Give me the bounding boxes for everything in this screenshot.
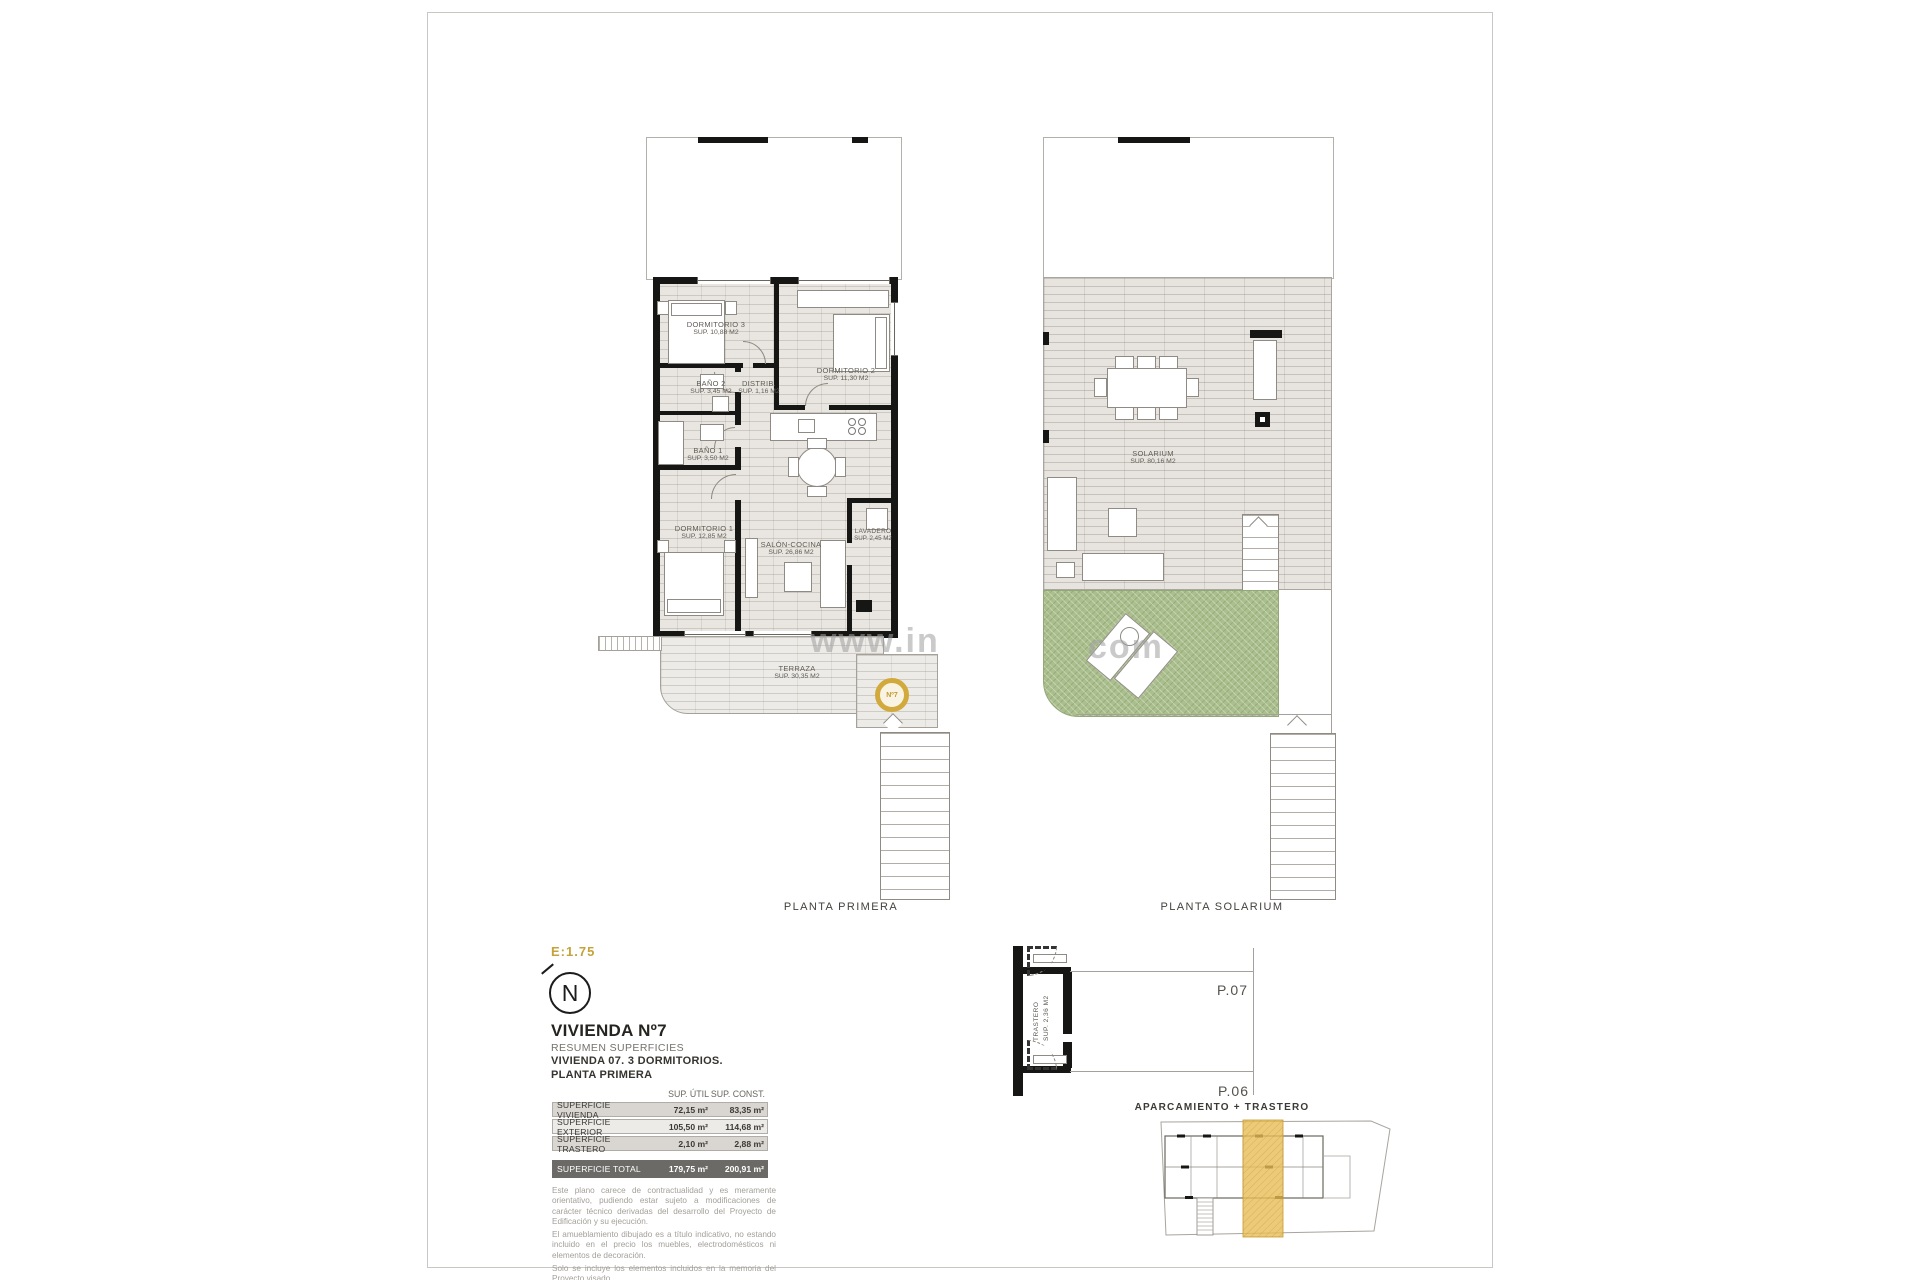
room-label-bano-2: BAÑO 2 SUP. 3,45 M2 [690,379,731,395]
wall-segment [852,137,868,143]
parking-line [1070,1071,1253,1072]
room-label-lavadero: LAVADERO SUP. 2,45 M2 [854,528,892,542]
dining-table [797,447,837,487]
scale-label: E:1.75 [551,944,595,959]
window [798,277,890,284]
pouf [1056,562,1075,578]
pillow [875,317,887,369]
room-area: SUP. 26,86 M2 [761,549,822,556]
table-row: SUPERFICIE TRASTERO 2,10 m² 2,88 m² [552,1136,768,1151]
site-key-plan [1145,1116,1400,1266]
wall-segment [735,392,741,425]
nightstand [657,540,669,553]
room-area: SUP. 11,30 M2 [817,375,875,382]
disclaimer-paragraph: Este plano carece de contractualidad y e… [552,1186,776,1227]
surface-table-header: SUP. ÚTIL SUP. CONST. [552,1088,768,1100]
disclaimer-paragraph: El amueblamiento dibujado es a título in… [552,1230,776,1261]
chair [807,486,827,497]
north-letter: N [562,980,579,1007]
kitchen-sink [798,419,815,433]
room-area: SUP. 30,35 M2 [774,673,819,680]
window [891,302,898,356]
room-area: SUP. 2,45 M2 [854,535,892,542]
row-const: 83,35 m² [708,1105,767,1115]
tv-unit [745,538,758,598]
wall-segment [829,405,897,410]
sofa [820,540,846,608]
chair [835,457,846,477]
exterior-staircase [1270,733,1336,900]
chair [1137,407,1156,420]
room-name: DORMITORIO 1 [675,524,733,533]
wall-segment [1043,332,1049,345]
chair [1115,407,1134,420]
room-area: SUP. 3,50 M2 [687,455,728,462]
room-name: DORMITORIO 3 [687,320,745,329]
sink-bano-1 [700,424,724,441]
hob-burner [858,427,866,435]
table-total-row: SUPERFICIE TOTAL 179,75 m² 200,91 m² [552,1160,768,1178]
nightstand [724,540,736,553]
room-label-salon-cocina: SALÓN-COCINA SUP. 26,86 M2 [761,540,822,556]
wall-segment [847,503,852,543]
hob-burner [848,427,856,435]
solarium-dining-table [1107,368,1187,408]
chair [788,457,799,477]
parking-line [1070,971,1253,972]
room-label-distribuidor: DISTRIB. SUP. 1,16 M2 [738,379,779,395]
wall-segment [735,363,741,372]
window [697,277,771,284]
page-title: VIVIENDA Nº7 [551,1021,667,1041]
hob-burner [848,418,856,426]
room-label-dormitorio-3: DORMITORIO 3 SUP. 10,88 M2 [687,320,745,336]
roof-outline-solarium [1043,137,1334,279]
parking-spot-06: P.06 [1218,1083,1249,1099]
plot-line [1077,714,1332,715]
room-name: BAÑO 1 [687,446,728,455]
wall-segment [1043,430,1049,443]
outdoor-table [1108,508,1137,537]
room-name: SALÓN-COCINA [761,540,822,549]
row-const: 114,68 m² [708,1122,767,1132]
toilet-bano-2 [712,396,729,412]
chair [1137,356,1156,369]
disclaimer-paragraph: Solo se incluye los elementos incluidos … [552,1264,776,1280]
wall-segment [856,600,872,612]
row-const: 2,88 m² [708,1139,767,1149]
plan-caption-solarium: PLANTA SOLARIUM [1161,901,1284,913]
trastero-detail-label: TRASTERO SUP. 2,36 M2 [1032,983,1058,1041]
room-area: SUP. 1,16 M2 [738,388,779,395]
chair [1094,378,1107,397]
room-label-terraza: TERRAZA SUP. 30,35 M2 [774,664,819,680]
total-const: 200,91 m² [708,1164,767,1174]
ac-unit-core [1260,417,1265,422]
room-area: SUP. 3,45 M2 [690,388,731,395]
table-row: SUPERFICIE VIVIENDA 72,15 m² 83,35 m² [552,1102,768,1117]
row-util: 72,15 m² [646,1105,708,1115]
parking-line [1253,948,1254,1095]
chair [1115,356,1134,369]
parking-spot-07: P.07 [1217,982,1248,998]
watermark-left: www.in [810,622,940,661]
room-area: SUP. 12,85 M2 [675,533,733,540]
pillow [667,599,721,613]
wall-segment [1118,137,1190,143]
watermark-right: com [1088,628,1164,667]
room-area: SUP. 10,88 M2 [687,329,745,336]
row-label: SUPERFICIE TRASTERO [553,1134,646,1154]
washer-lavadero [866,508,888,530]
wardrobe-dormitorio-2 [797,290,889,308]
outdoor-sofa [1047,477,1077,551]
total-util: 179,75 m² [646,1164,708,1174]
wall-segment [847,498,898,503]
plot-line [1331,590,1332,735]
col-header-const: SUP. CONST. [709,1089,768,1099]
table-row: SUPERFICIE EXTERIOR 105,50 m² 114,68 m² [552,1119,768,1134]
wall-segment [653,465,741,470]
coffee-table [784,562,812,592]
room-name: BAÑO 2 [690,379,731,388]
unit-description: VIVIENDA 07. 3 DORMITORIOS. [551,1055,723,1067]
plan-sheet-page: Nº7 DORMITORIO 3 SUP. 10,88 M2 DORMITORI… [0,0,1920,1280]
shower-bano-1 [658,421,684,465]
roof-outline-primera [646,137,902,280]
wall-segment [1013,946,1023,1096]
room-name: LAVADERO [854,528,892,535]
room-area: SUP. 80,16 M2 [1130,458,1175,465]
nightstand [725,301,737,315]
terrace-railing [598,636,662,651]
wall-segment [698,137,768,143]
col-header-util: SUP. ÚTIL [647,1089,709,1099]
unit-number-badge: Nº7 [875,678,909,712]
north-arrow: N [549,972,591,1014]
room-label-dormitorio-1: DORMITORIO 1 SUP. 12,85 M2 [675,524,733,540]
wall-segment [735,500,741,631]
plan-caption-primera: PLANTA PRIMERA [784,901,898,913]
wall-segment [1250,330,1282,338]
page-subtitle: RESUMEN SUPERFICIES [551,1042,684,1054]
floor-description: PLANTA PRIMERA [551,1069,652,1081]
nightstand [657,301,669,315]
chair [1159,407,1178,420]
room-label-bano-1: BAÑO 1 SUP. 3,50 M2 [687,446,728,462]
room-name: TERRAZA [774,664,819,673]
outdoor-sofa [1082,553,1164,581]
solarium-floor [1043,277,1332,590]
unit-number: Nº7 [886,692,898,699]
row-util: 2,10 m² [646,1139,708,1149]
room-label-dormitorio-2: DORMITORIO 2 SUP. 11,30 M2 [817,366,875,382]
room-label-solarium: SOLARIUM SUP. 80,16 M2 [1130,449,1175,465]
room-name: DISTRIB. [738,379,779,388]
room-name: DORMITORIO 2 [817,366,875,375]
trastero-area: SUP. 2,36 M2 [1043,995,1050,1041]
row-util: 105,50 m² [646,1122,708,1132]
trastero-name: TRASTERO [1033,1002,1040,1041]
shaft-box [1253,340,1277,400]
wall-segment [1063,972,1072,1034]
chair [1159,356,1178,369]
chair [807,438,827,449]
exterior-staircase [880,732,950,900]
total-label: SUPERFICIE TOTAL [553,1164,646,1174]
parking-caption: APARCAMIENTO + TRASTERO [1135,1102,1310,1113]
pillow [671,303,722,316]
chair [1186,378,1199,397]
legal-disclaimer: Este plano carece de contractualidad y e… [552,1186,776,1280]
wall-segment [779,405,805,410]
hob-burner [858,418,866,426]
room-name: SOLARIUM [1130,449,1175,458]
